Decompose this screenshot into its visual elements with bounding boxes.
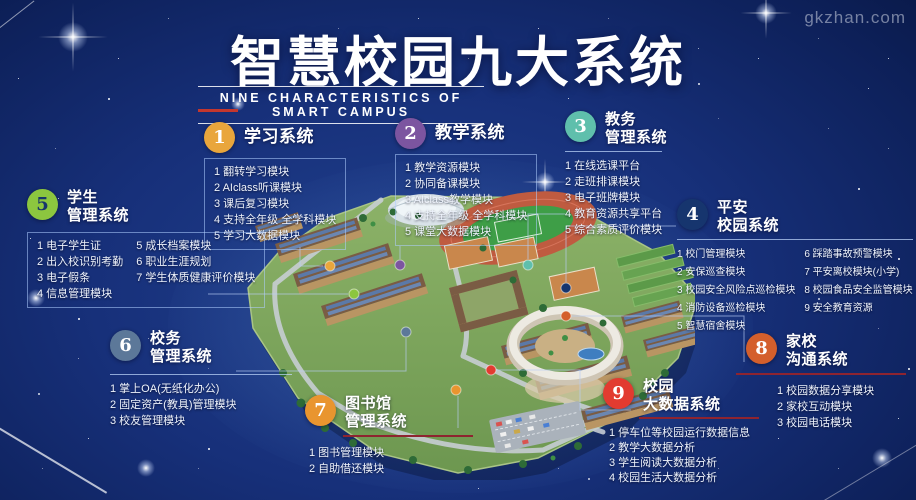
system-block-8: 8 家校 沟通系统 1 校园数据分享模块 2 家校互动模块 3 校园电话模块 [746,333,906,431]
system-5-column-2: 5 成长档案模块 6 职业生涯规划 7 学生体质健康评价模块 [136,238,255,302]
system-number: 6 [119,335,132,356]
system-7-module-list: 1 图书管理模块 2 自助借还模块 [309,445,384,477]
module-item: 6 职业生涯规划 [136,254,255,270]
module-item: 5 课堂大数据模块 [405,224,527,240]
system-7-number-badge: 7 [305,395,336,426]
system-block-6: 6 校务 管理系统 1 掌上OA(无纸化办公) 2 固定资产(教具)管理模块 3… [110,330,292,429]
star-glow-icon [137,459,155,477]
subtitle-red-tick [198,109,238,112]
module-item: 2 教学大数据分析 [609,441,750,456]
system-1-number-badge: 1 [204,122,235,153]
module-item: 4 校园生活大数据分析 [609,471,750,486]
system-number: 3 [574,116,587,137]
module-item: 2 自助借还模块 [309,461,384,477]
module-item: 4 教育资源共享平台 [565,206,662,222]
module-item: 1 校门管理模块 [677,246,795,264]
system-5-number-badge: 5 [27,189,58,220]
system-block-9: 9 校园 大数据系统 1 停车位等校园运行数据信息 2 教学大数据分析 3 学生… [603,378,759,486]
system-block-2: 2 教学系统 1 教学资源模块 2 协同备课模块 3 AIclass教学模块 4… [395,118,537,246]
system-block-5: 5 学生 管理系统 1 电子学生证 2 出入校识别考勤 3 电子假条 4 信息管… [27,189,265,308]
system-3-title: 教务 管理系统 [605,111,667,146]
module-item: 2 走班排课模块 [565,174,662,190]
module-item: 1 图书管理模块 [309,445,384,461]
system-9-module-list: 1 停车位等校园运行数据信息 2 教学大数据分析 3 学生阅读大数据分析 4 校… [609,426,750,486]
system-number: 1 [213,127,226,148]
corner-line-bottom-left [0,424,107,494]
module-item: 5 成长档案模块 [136,238,255,254]
system-7-title: 图书馆 管理系统 [345,395,407,430]
module-item: 3 学生阅读大数据分析 [609,456,750,471]
module-item: 4 支持全年级 全学科模块 [405,208,527,224]
system-7-title-underline [343,435,473,437]
module-item: 3 AIclass教学模块 [405,192,527,208]
system-5-title: 学生 管理系统 [67,189,129,224]
module-item: 8 校园食品安全监管模块 [804,282,912,300]
module-item: 1 在线选课平台 [565,158,662,174]
module-item: 6 踩踏事故预警模块 [804,246,912,264]
system-6-module-list: 1 掌上OA(无纸化办公) 2 固定资产(教具)管理模块 3 校友管理模块 [110,374,292,429]
system-8-number-badge: 8 [746,333,777,364]
module-item: 3 电子班牌模块 [565,190,662,206]
system-6-number-badge: 6 [110,330,141,361]
system-number: 5 [36,194,49,215]
module-item: 2 安保巡查模块 [677,264,795,282]
module-item: 2 家校互动模块 [777,399,874,415]
system-4-column-2: 6 踩踏事故预警模块 7 平安离校模块(小学) 8 校园食品安全监管模块 9 安… [804,246,912,336]
watermark: gkzhan.com [804,8,906,28]
module-item: 1 掌上OA(无纸化办公) [110,381,292,397]
module-item: 2 固定资产(教具)管理模块 [110,397,292,413]
system-3-module-list: 1 在线选课平台 2 走班排课模块 3 电子班牌模块 4 教育资源共享平台 5 … [565,151,662,238]
module-item: 9 安全教育资源 [804,300,912,318]
system-5-module-list: 1 电子学生证 2 出入校识别考勤 3 电子假条 4 信息管理模块 5 成长档案… [27,232,265,308]
system-9-number-badge: 9 [603,378,634,409]
module-item: 5 综合素质评价模块 [565,222,662,238]
system-number: 8 [755,338,768,359]
system-4-column-1: 1 校门管理模块 2 安保巡查模块 3 校园安全风险点巡检模块 4 消防设备巡检… [677,246,795,336]
module-item: 1 教学资源模块 [405,160,527,176]
module-item: 7 学生体质健康评价模块 [136,270,255,286]
system-block-3: 3 教务 管理系统 1 在线选课平台 2 走班排课模块 3 电子班牌模块 4 教… [565,111,667,238]
module-item: 3 校友管理模块 [110,413,292,429]
system-1-title: 学习系统 [244,127,314,147]
system-2-module-list: 1 教学资源模块 2 协同备课模块 3 AIclass教学模块 4 支持全年级 … [395,154,537,246]
module-item: 7 平安离校模块(小学) [804,264,912,282]
system-9-title-underline [639,417,759,419]
system-4-title: 平安 校园系统 [717,199,779,234]
system-8-module-list: 1 校园数据分享模块 2 家校互动模块 3 校园电话模块 [777,383,874,431]
corner-line-bottom-right [824,442,916,500]
system-2-number-badge: 2 [395,118,426,149]
module-item: 2 出入校识别考勤 [37,254,123,270]
system-4-module-list: 1 校门管理模块 2 安保巡查模块 3 校园安全风险点巡检模块 4 消防设备巡检… [677,239,913,336]
system-8-title: 家校 沟通系统 [786,333,848,368]
starfield-layer-large [0,0,2,2]
module-item: 2 协同备课模块 [405,176,527,192]
module-item: 1 电子学生证 [37,238,123,254]
module-item: 3 电子假条 [37,270,123,286]
module-item: 4 消防设备巡检模块 [677,300,795,318]
module-item: 1 翻转学习模块 [214,164,336,180]
system-number: 9 [612,383,625,404]
system-5-column-1: 1 电子学生证 2 出入校识别考勤 3 电子假条 4 信息管理模块 [37,238,123,302]
system-number: 2 [404,123,417,144]
system-number: 4 [686,204,699,225]
system-block-4: 4 平安 校园系统 1 校门管理模块 2 安保巡查模块 3 校园安全风险点巡检模… [677,199,913,336]
module-item: 1 停车位等校园运行数据信息 [609,426,750,441]
system-3-number-badge: 3 [565,111,596,142]
system-4-number-badge: 4 [677,199,708,230]
smart-campus-poster: 智慧校园九大系统 NINE CHARACTERISTICS OF SMART C… [0,0,916,500]
system-number: 7 [314,400,327,421]
system-6-title: 校务 管理系统 [150,330,212,365]
system-9-title: 校园 大数据系统 [643,378,721,413]
module-item: 3 校园电话模块 [777,415,874,431]
module-item: 3 校园安全风险点巡检模块 [677,282,795,300]
system-2-title: 教学系统 [435,123,505,143]
system-8-title-underline [736,373,906,375]
module-item: 1 校园数据分享模块 [777,383,874,399]
module-item: 4 信息管理模块 [37,286,123,302]
system-block-7: 7 图书馆 管理系统 1 图书管理模块 2 自助借还模块 [305,395,473,477]
